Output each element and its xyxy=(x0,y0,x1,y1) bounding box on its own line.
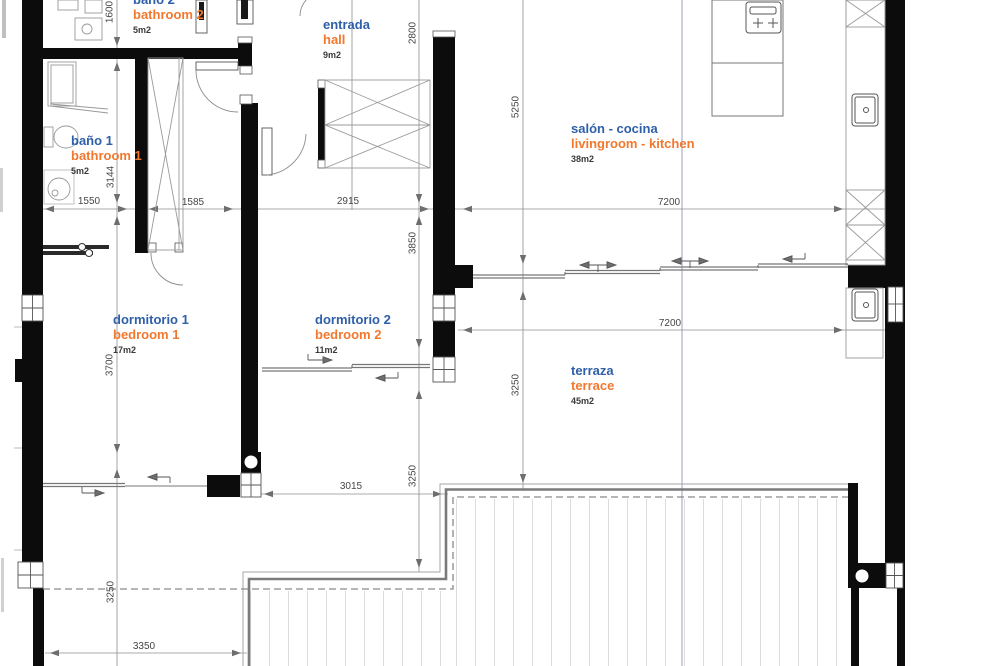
room-name-es: terraza xyxy=(571,363,614,378)
living-terrace-slider xyxy=(473,264,848,278)
room-label-terrace: terraza terrace 45m2 xyxy=(571,363,614,409)
terrace-railing xyxy=(43,484,848,666)
window-icon xyxy=(241,473,261,497)
upper-right-door-leaf xyxy=(237,0,253,24)
room-label-bedroom2: dormitorio 2 bedroom 2 11m2 xyxy=(315,312,391,358)
room-area: 45m2 xyxy=(571,394,614,409)
room-label-bathroom2: baño 2 bathroom 2 5m2 xyxy=(133,0,204,38)
room-name-en: livingroom - kitchen xyxy=(571,136,695,151)
dim-label: 3700 xyxy=(105,354,116,376)
room-label-livingroom: salón - cocina livingroom - kitchen 38m2 xyxy=(571,121,695,167)
bathroom2-fixtures xyxy=(58,0,102,40)
window-icon xyxy=(18,562,43,588)
wardrobe-closet xyxy=(148,58,183,250)
window-icon xyxy=(433,295,455,321)
dim-label: 2915 xyxy=(337,196,359,207)
kitchen-island xyxy=(712,0,783,116)
dim-label: 3250 xyxy=(408,465,419,487)
window-icon xyxy=(22,295,43,321)
room-area: 5m2 xyxy=(133,23,204,38)
bathroom2-door xyxy=(300,0,324,16)
room-name-en: terrace xyxy=(571,378,614,393)
cooktop-icon xyxy=(746,2,781,33)
room-name-es: baño 1 xyxy=(71,133,142,148)
closet-door xyxy=(151,253,183,285)
room-name-en: bedroom 2 xyxy=(315,327,391,342)
dim-label: 3850 xyxy=(408,232,419,254)
dim-label: 3350 xyxy=(133,641,155,652)
closets xyxy=(148,0,885,358)
room-label-entrance: entrada hall 9m2 xyxy=(323,17,370,63)
room-name-en: bathroom 1 xyxy=(71,148,142,163)
window-icon xyxy=(886,563,903,588)
room-name-es: salón - cocina xyxy=(571,121,695,136)
bedroom1-terrace-slider xyxy=(43,484,207,487)
room-name-es: entrada xyxy=(323,17,370,32)
room-area: 9m2 xyxy=(323,48,370,63)
toilet-icon xyxy=(85,0,102,13)
room-label-bedroom1: dormitorio 1 bedroom 1 17m2 xyxy=(113,312,189,358)
room-name-en: hall xyxy=(323,32,370,47)
dim-label: 7200 xyxy=(659,318,681,329)
hall-corridor-door xyxy=(262,128,306,175)
bedroom2-terrace-slider xyxy=(262,365,430,372)
room-area: 17m2 xyxy=(113,343,189,358)
dim-label: 3015 xyxy=(340,481,362,492)
room-name-en: bedroom 1 xyxy=(113,327,189,342)
radiator-icon xyxy=(43,244,109,257)
dim-label: 1585 xyxy=(182,197,204,208)
hall-closet xyxy=(325,80,430,168)
room-area: 38m2 xyxy=(571,152,695,167)
column-circle xyxy=(245,456,258,469)
door-jambs xyxy=(148,31,455,252)
dim-label: 2800 xyxy=(408,22,419,44)
room-area: 11m2 xyxy=(315,343,391,358)
dim-label: 3250 xyxy=(106,581,117,603)
washbasin-icon xyxy=(75,18,102,40)
dim-label: 5250 xyxy=(511,96,522,118)
sink-icon xyxy=(852,289,878,321)
room-name-en: bathroom 2 xyxy=(133,7,204,22)
dim-label: 1550 xyxy=(78,196,100,207)
kitchen-tall-cabinets xyxy=(846,0,885,265)
column-circle xyxy=(856,570,869,583)
dim-label: 7200 xyxy=(658,197,680,208)
shower-icon xyxy=(48,62,76,106)
sink-icon xyxy=(852,94,878,126)
dim-label: 3144 xyxy=(106,166,117,188)
floor-plan: baño 2 bathroom 2 5m2 entrada hall 9m2 b… xyxy=(0,0,1000,666)
room-name-es: baño 2 xyxy=(133,0,204,7)
room-name-es: dormitorio 1 xyxy=(113,312,189,327)
washbasin-icon xyxy=(44,170,74,204)
doors xyxy=(151,0,324,285)
dim-label: 1600 xyxy=(105,1,116,23)
room-name-es: dormitorio 2 xyxy=(315,312,391,327)
entrance-door xyxy=(196,62,238,112)
window-icon xyxy=(888,287,903,322)
window-icon xyxy=(433,357,455,382)
dim-label: 3250 xyxy=(511,374,522,396)
